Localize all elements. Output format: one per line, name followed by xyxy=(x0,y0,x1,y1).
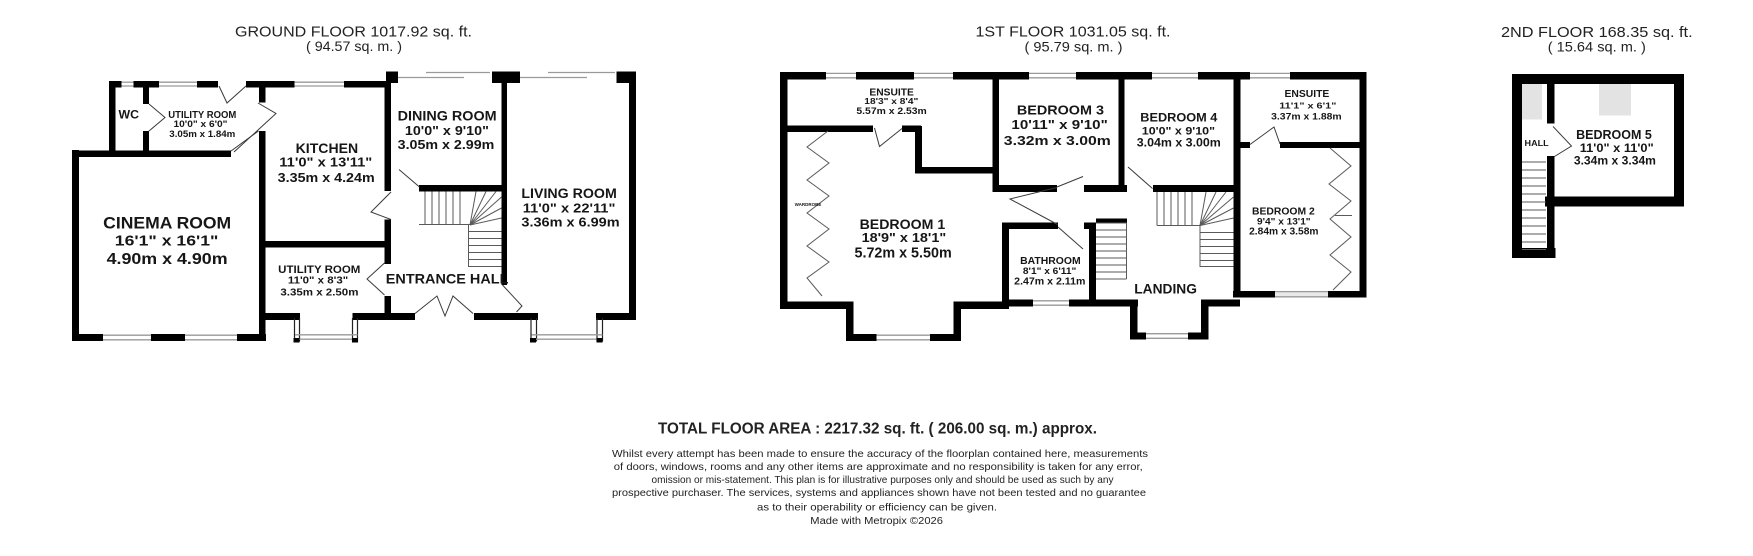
svg-text:3.35m x 2.50m: 3.35m x 2.50m xyxy=(280,287,358,299)
svg-text:10'0" x 9'10": 10'0" x 9'10" xyxy=(1142,126,1215,138)
svg-text:WARDROBE: WARDROBE xyxy=(795,202,822,207)
svg-text:as to their operability or eff: as to their operability or efficiency ca… xyxy=(757,502,997,514)
svg-text:( 15.64 sq. m. ): ( 15.64 sq. m. ) xyxy=(1548,39,1646,55)
svg-text:KITCHEN: KITCHEN xyxy=(296,141,359,156)
svg-text:BATHROOM: BATHROOM xyxy=(1020,255,1081,267)
svg-text:Whilst every attempt has been: Whilst every attempt has been made to en… xyxy=(612,448,1148,460)
svg-text:18'3" x 8'4": 18'3" x 8'4" xyxy=(864,96,918,106)
svg-text:11'0" x 22'11": 11'0" x 22'11" xyxy=(523,201,616,215)
svg-text:LANDING: LANDING xyxy=(1134,282,1197,297)
svg-text:11'0" x 13'11": 11'0" x 13'11" xyxy=(279,156,372,170)
svg-text:prospective purchaser. The ser: prospective purchaser. The services, sys… xyxy=(612,487,1146,499)
svg-text:BEDROOM 5: BEDROOM 5 xyxy=(1576,128,1652,142)
svg-text:of doors, windows, rooms and a: of doors, windows, rooms and any other i… xyxy=(614,461,1143,473)
svg-text:5.72m x 5.50m: 5.72m x 5.50m xyxy=(855,245,952,261)
svg-text:5.57m x 2.53m: 5.57m x 2.53m xyxy=(856,106,926,116)
svg-text:( 94.57 sq. m. ): ( 94.57 sq. m. ) xyxy=(306,38,402,54)
svg-text:Made with Metropix ©2026: Made with Metropix ©2026 xyxy=(810,516,943,527)
svg-text:DINING ROOM: DINING ROOM xyxy=(398,109,497,124)
svg-text:WC: WC xyxy=(119,110,140,122)
svg-text:9'4" x 13'1": 9'4" x 13'1" xyxy=(1257,217,1311,227)
svg-text:UTILITY ROOM: UTILITY ROOM xyxy=(278,264,360,276)
svg-text:11'0" x 8'3": 11'0" x 8'3" xyxy=(288,275,349,286)
svg-text:10'0" x 9'10": 10'0" x 9'10" xyxy=(405,124,489,138)
svg-text:CINEMA ROOM: CINEMA ROOM xyxy=(103,214,231,232)
svg-text:LIVING ROOM: LIVING ROOM xyxy=(521,186,616,201)
svg-text:3.32m x 3.00m: 3.32m x 3.00m xyxy=(1004,133,1111,148)
svg-text:BEDROOM 3: BEDROOM 3 xyxy=(1017,103,1104,118)
svg-text:BEDROOM 4: BEDROOM 4 xyxy=(1140,113,1218,125)
svg-text:( 95.79 sq. m. ): ( 95.79 sq. m. ) xyxy=(1025,39,1123,55)
svg-text:4.90m x 4.90m: 4.90m x 4.90m xyxy=(107,251,228,268)
svg-text:2.84m x 3.58m: 2.84m x 3.58m xyxy=(1249,227,1319,238)
svg-text:3.35m x 4.24m: 3.35m x 4.24m xyxy=(278,171,375,185)
svg-text:3.34m x 3.34m: 3.34m x 3.34m xyxy=(1574,153,1656,167)
svg-text:omission or mis-statement. Thi: omission or mis-statement. This plan is … xyxy=(652,474,1115,486)
svg-text:10'11" x 9'10": 10'11" x 9'10" xyxy=(1011,118,1107,132)
svg-text:3.05m x 2.99m: 3.05m x 2.99m xyxy=(398,137,495,152)
svg-text:ENSUITE: ENSUITE xyxy=(1285,89,1330,100)
svg-text:8'1" x 6'11": 8'1" x 6'11" xyxy=(1023,266,1076,276)
svg-text:HALL: HALL xyxy=(1525,139,1549,148)
svg-text:18'9" x 18'1": 18'9" x 18'1" xyxy=(862,230,947,245)
svg-text:TOTAL FLOOR AREA : 2217.32 sq.: TOTAL FLOOR AREA : 2217.32 sq. ft. ( 206… xyxy=(658,421,1097,438)
svg-text:16'1" x 16'1": 16'1" x 16'1" xyxy=(115,233,219,250)
svg-text:3.37m x 1.88m: 3.37m x 1.88m xyxy=(1271,112,1342,122)
svg-text:3.36m x 6.99m: 3.36m x 6.99m xyxy=(521,214,619,229)
svg-text:2.47m x 2.11m: 2.47m x 2.11m xyxy=(1014,276,1085,287)
svg-text:11'1" x 6'1": 11'1" x 6'1" xyxy=(1279,101,1336,111)
svg-text:ENTRANCE HALL: ENTRANCE HALL xyxy=(386,270,509,286)
svg-text:3.04m x 3.00m: 3.04m x 3.00m xyxy=(1137,138,1221,150)
svg-text:3.05m x 1.84m: 3.05m x 1.84m xyxy=(169,129,235,140)
